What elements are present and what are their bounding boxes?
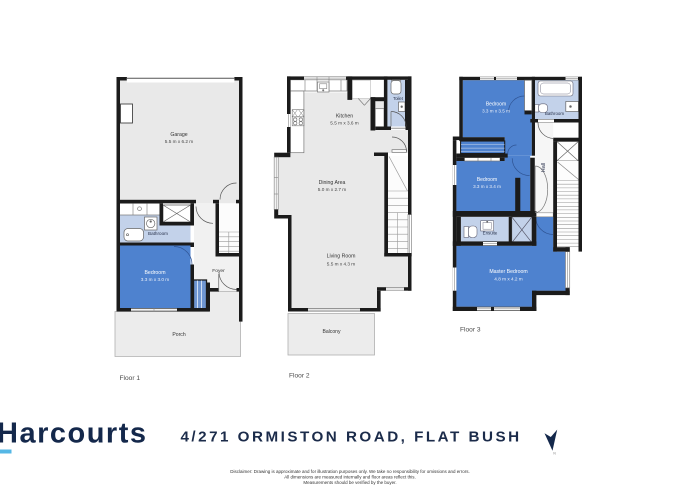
svg-text:4.8 m x 4.2 m: 4.8 m x 4.2 m bbox=[494, 276, 522, 281]
svg-text:Floor 3: Floor 3 bbox=[460, 326, 481, 333]
svg-text:5.5 m x 6.2 m: 5.5 m x 6.2 m bbox=[165, 139, 193, 144]
svg-text:Kitchen: Kitchen bbox=[336, 113, 353, 119]
svg-text:3.3 m x 3.5 m: 3.3 m x 3.5 m bbox=[482, 109, 510, 114]
svg-text:Foyer: Foyer bbox=[212, 268, 225, 274]
svg-text:Toilet: Toilet bbox=[393, 96, 404, 101]
svg-text:Dining Area: Dining Area bbox=[319, 180, 346, 186]
svg-text:Bedroom: Bedroom bbox=[477, 177, 497, 183]
svg-text:4/271 ORMISTON ROAD, FLAT BUSH: 4/271 ORMISTON ROAD, FLAT BUSH bbox=[180, 429, 521, 446]
svg-text:Garage: Garage bbox=[170, 132, 187, 138]
svg-text:Bathroom: Bathroom bbox=[148, 231, 168, 236]
svg-text:Porch: Porch bbox=[172, 332, 185, 338]
svg-text:Measurements should be verifie: Measurements should be verified by the b… bbox=[303, 480, 396, 485]
svg-text:Bathroom: Bathroom bbox=[545, 111, 564, 116]
svg-text:5.0 m x 2.7 m: 5.0 m x 2.7 m bbox=[318, 187, 346, 192]
svg-text:All dimensions are measured in: All dimensions are measured internally a… bbox=[284, 475, 416, 480]
svg-text:Living Room: Living Room bbox=[327, 254, 356, 260]
svg-text:Bedroom: Bedroom bbox=[486, 102, 506, 108]
svg-text:5.5 m x 4.3 m: 5.5 m x 4.3 m bbox=[327, 262, 355, 267]
svg-text:Hall: Hall bbox=[541, 163, 547, 173]
svg-text:Floor 1: Floor 1 bbox=[120, 375, 141, 382]
svg-text:Bedroom: Bedroom bbox=[144, 270, 165, 276]
svg-text:Balcony: Balcony bbox=[322, 329, 341, 335]
svg-text:Disclaimer: Drawing is approxi: Disclaimer: Drawing is approximate and f… bbox=[230, 469, 469, 474]
svg-text:Floor 2: Floor 2 bbox=[289, 372, 310, 379]
svg-text:Master Bedroom: Master Bedroom bbox=[489, 269, 527, 275]
svg-text:5.5 m x 3.6 m: 5.5 m x 3.6 m bbox=[330, 120, 358, 125]
svg-text:3.3 m x 3.0 m: 3.3 m x 3.0 m bbox=[141, 277, 169, 282]
svg-text:Harcourts: Harcourts bbox=[0, 418, 148, 450]
svg-text:Ensuite: Ensuite bbox=[483, 231, 498, 236]
svg-text:N: N bbox=[553, 452, 556, 456]
svg-text:3.3 m x 3.4 m: 3.3 m x 3.4 m bbox=[473, 184, 501, 189]
